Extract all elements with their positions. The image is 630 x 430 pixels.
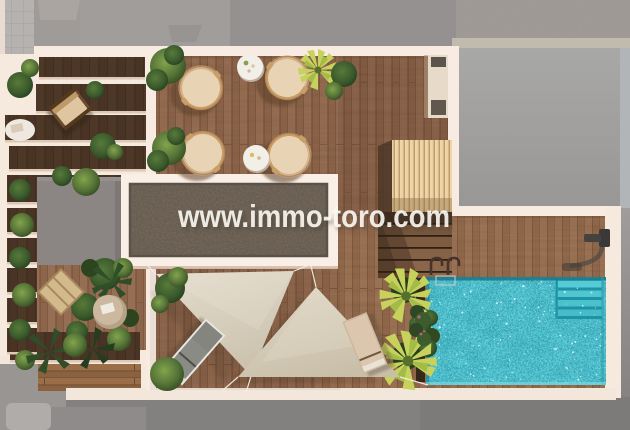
svg-text:www.immo-toro.com: www.immo-toro.com	[177, 198, 450, 234]
